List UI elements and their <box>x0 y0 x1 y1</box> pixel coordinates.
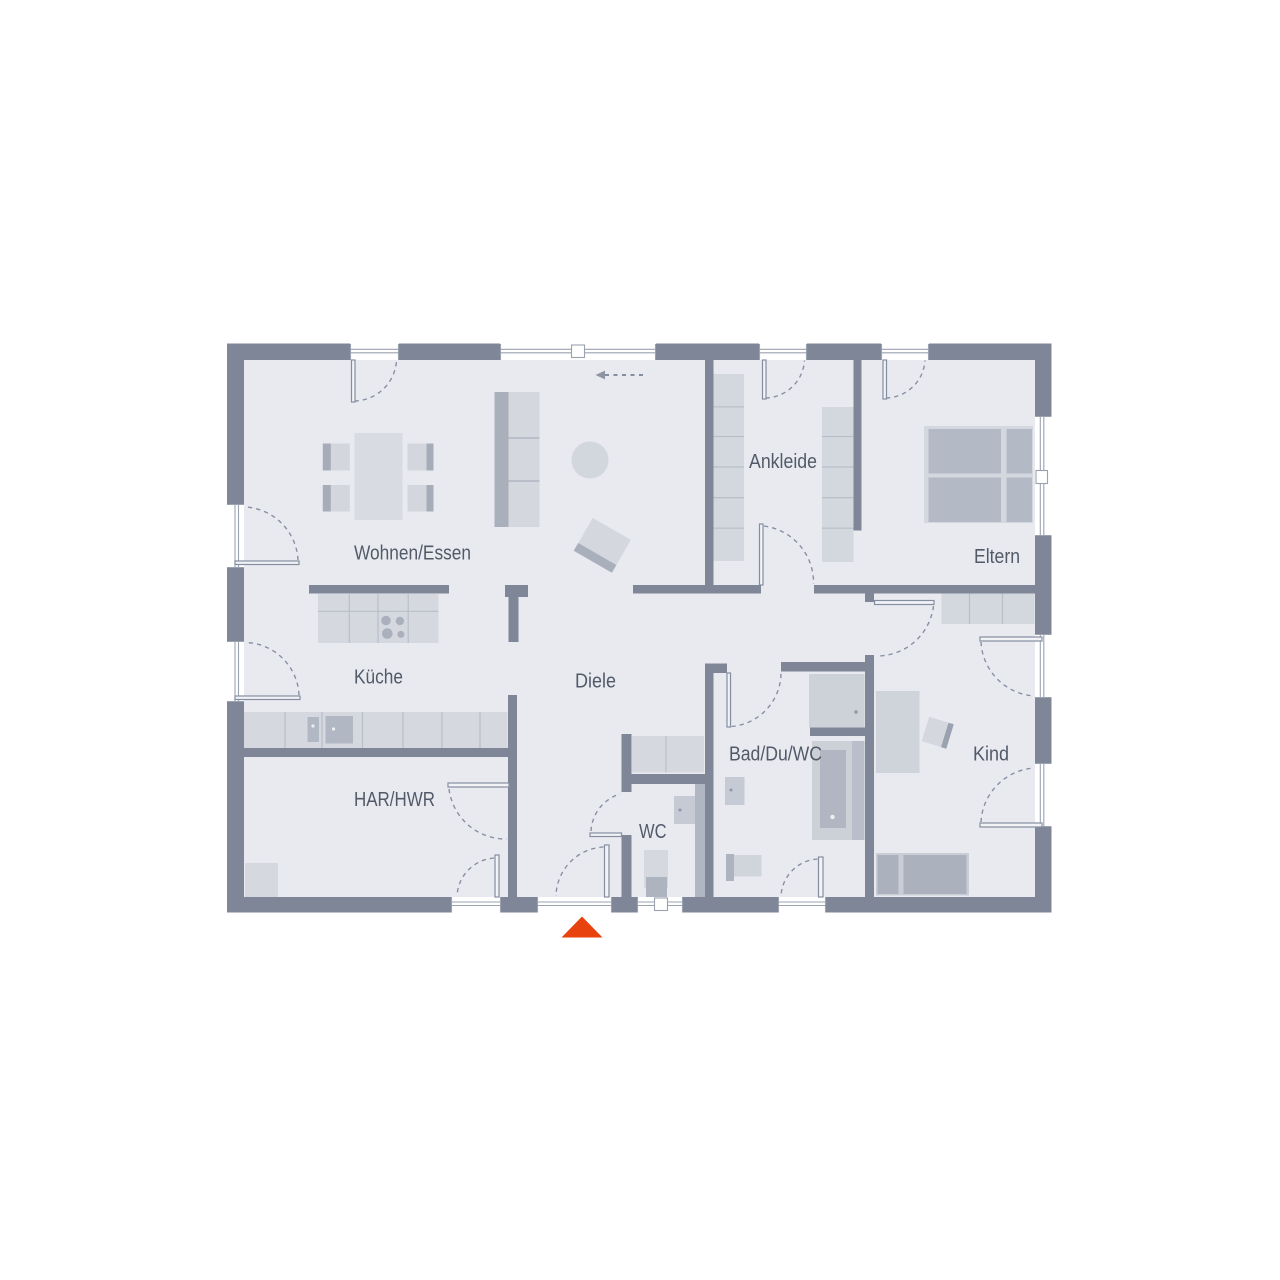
svg-text:Ankleide: Ankleide <box>749 451 817 473</box>
svg-text:HAR/HWR: HAR/HWR <box>354 789 435 811</box>
svg-text:WC: WC <box>639 821 667 843</box>
svg-text:Diele: Diele <box>575 671 616 693</box>
svg-text:Küche: Küche <box>354 667 403 689</box>
svg-text:Kind: Kind <box>973 744 1009 766</box>
svg-text:Wohnen/Essen: Wohnen/Essen <box>354 543 471 565</box>
svg-text:Eltern: Eltern <box>974 546 1020 568</box>
svg-text:Bad/Du/WC: Bad/Du/WC <box>729 744 822 766</box>
